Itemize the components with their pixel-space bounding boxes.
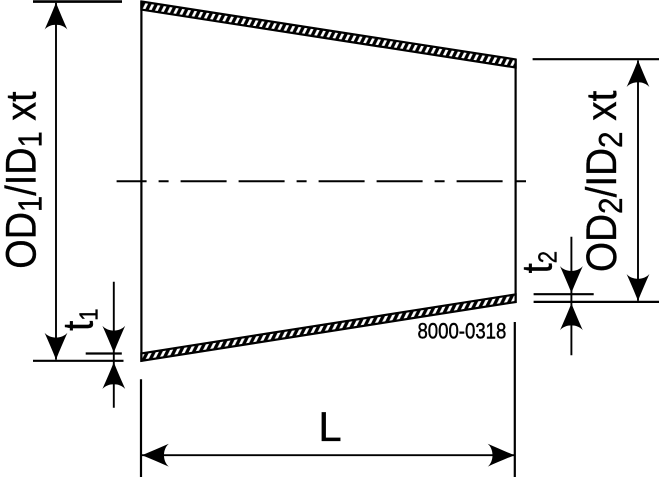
svg-text:8000-0318: 8000-0318	[417, 319, 506, 344]
svg-text:OD2/ID2 xt: OD2/ID2 xt	[577, 90, 629, 272]
svg-text:L: L	[318, 403, 341, 450]
svg-text:OD1/ID1 xt: OD1/ID1 xt	[0, 91, 49, 268]
